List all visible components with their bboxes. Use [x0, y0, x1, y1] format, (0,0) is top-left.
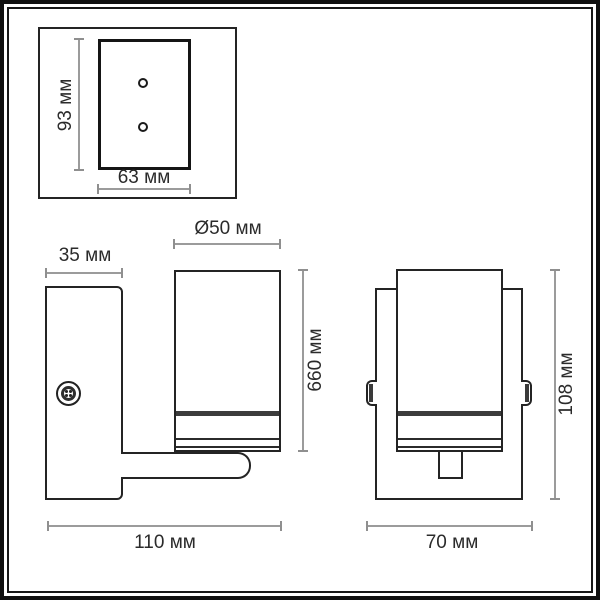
shade-line — [398, 446, 501, 448]
mounting-hole-top — [138, 78, 148, 88]
shade-band — [176, 411, 279, 416]
dimension-tick — [279, 239, 281, 249]
dimension-tick — [280, 521, 282, 531]
dimension-tick — [45, 268, 47, 278]
dimension-tick — [74, 169, 84, 171]
side-knob-left — [366, 380, 377, 406]
knob-bar — [525, 384, 529, 402]
side-knob-right — [521, 380, 532, 406]
lamp-shade-side — [174, 270, 281, 452]
dimension-tick — [173, 239, 175, 249]
dimension-label-plate-width: 63 мм — [104, 168, 184, 188]
shade-line — [176, 446, 279, 448]
dimension-line-body-height — [302, 270, 304, 452]
dimension-label-plate-depth: 35 мм — [45, 246, 125, 266]
dimension-drawing: 93 мм 63 мм 35 мм — [0, 0, 600, 600]
screw-ring — [61, 386, 76, 401]
dimension-line-plate-height — [78, 39, 80, 170]
shade-band — [398, 411, 501, 416]
dimension-label-body-height: 660 мм — [306, 320, 326, 400]
mounting-hole-bottom — [138, 122, 148, 132]
dimension-line-shade-diameter — [174, 243, 281, 245]
shade-line — [176, 438, 279, 440]
dimension-tick — [74, 38, 84, 40]
dimension-tick — [298, 269, 308, 271]
dimension-line-plate-width — [98, 188, 191, 190]
dimension-tick — [366, 521, 368, 531]
dimension-tick — [550, 269, 560, 271]
dimension-label-front-width: 70 мм — [402, 533, 502, 553]
arm-stem-front — [438, 452, 463, 479]
dimension-label-plate-height: 93 мм — [56, 65, 76, 145]
dimension-line-total-depth — [48, 525, 281, 527]
dimension-label-shade-diameter: Ø50 мм — [168, 219, 288, 239]
lamp-shade-front — [396, 269, 503, 452]
dimension-tick — [97, 184, 99, 194]
screw-knob-icon — [56, 381, 81, 406]
dimension-line-plate-depth — [46, 272, 123, 274]
dimension-tick — [189, 184, 191, 194]
dimension-tick — [47, 521, 49, 531]
dimension-line-front-width — [367, 525, 533, 527]
mounting-arm-side — [121, 452, 251, 479]
knob-bar — [369, 384, 373, 402]
dimension-tick — [531, 521, 533, 531]
dimension-tick — [121, 268, 123, 278]
dimension-tick — [298, 450, 308, 452]
dimension-label-front-height: 108 мм — [557, 344, 577, 424]
dimension-tick — [550, 498, 560, 500]
shade-line — [398, 438, 501, 440]
dimension-label-total-depth: 110 мм — [115, 533, 215, 553]
mounting-plate — [98, 39, 191, 170]
